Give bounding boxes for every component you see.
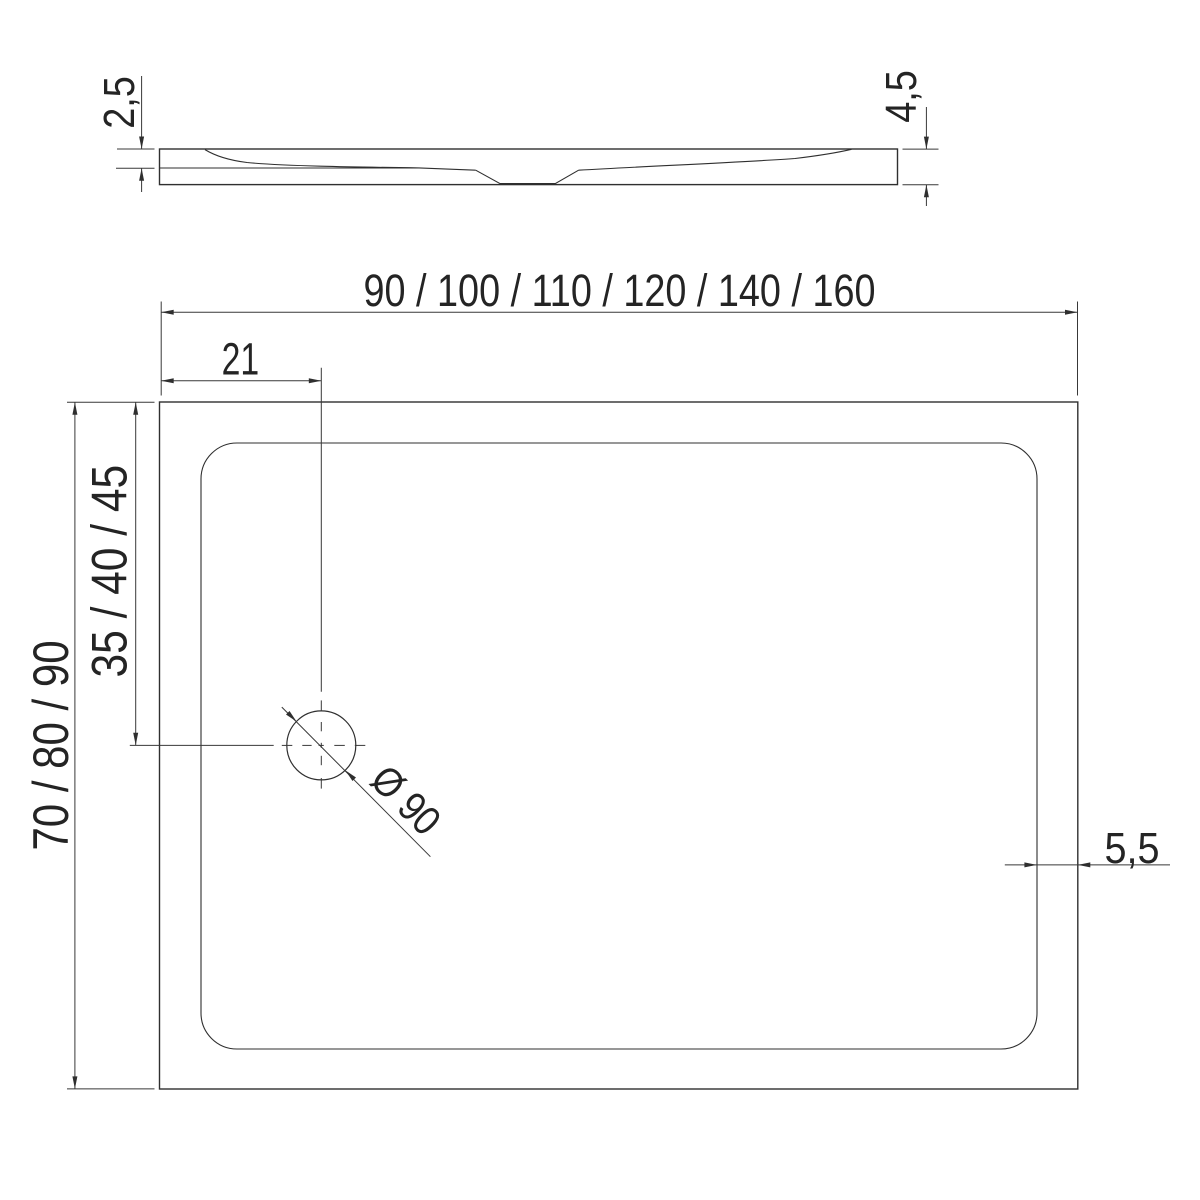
svg-text:35 / 40 / 45: 35 / 40 / 45: [81, 465, 137, 678]
svg-text:70 / 80 / 90: 70 / 80 / 90: [22, 640, 78, 850]
svg-text:2,5: 2,5: [94, 76, 143, 129]
svg-text:5,5: 5,5: [1104, 823, 1159, 872]
svg-text:90 / 100 / 110 / 120 / 140 / 1: 90 / 100 / 110 / 120 / 140 / 160: [364, 265, 876, 316]
svg-text:4,5: 4,5: [876, 70, 925, 123]
svg-text:21: 21: [222, 335, 260, 385]
svg-text:Ø 90: Ø 90: [362, 757, 450, 845]
